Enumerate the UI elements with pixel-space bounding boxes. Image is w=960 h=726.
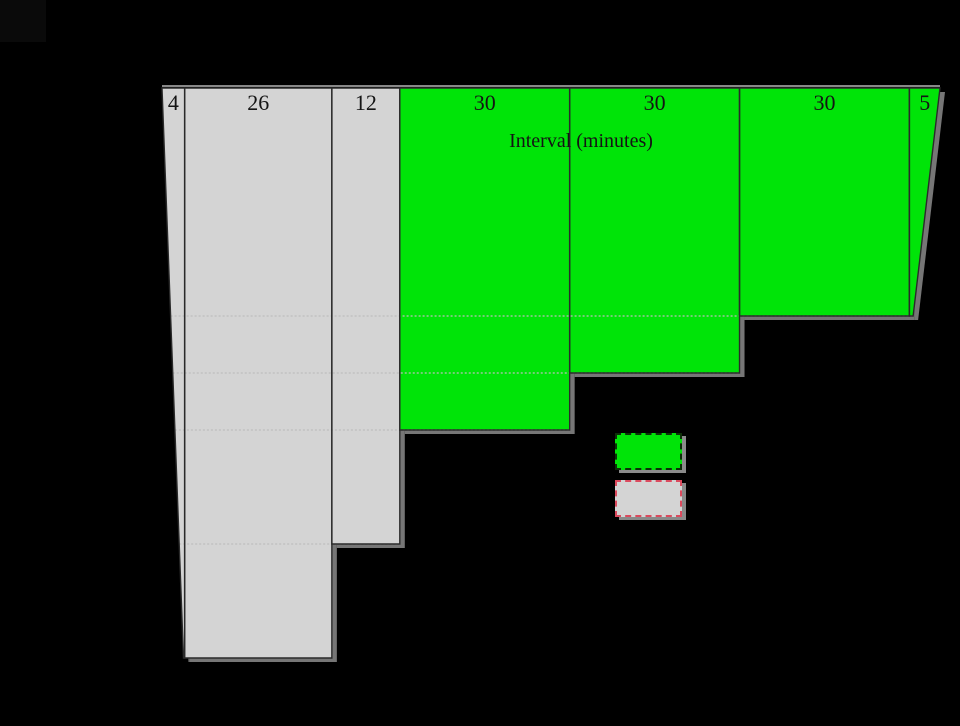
histogram-bar[interactable] <box>740 88 910 316</box>
x-axis-title: Interval (minutes) <box>509 130 653 153</box>
bar-width-label: 30 <box>813 90 835 115</box>
bar-width-label: 26 <box>247 90 269 115</box>
histogram-bar[interactable] <box>332 88 400 544</box>
histogram-chart: 426123030305 <box>0 0 960 726</box>
bar-width-label: 5 <box>919 90 930 115</box>
legend-swatch-gray[interactable] <box>615 480 682 517</box>
bar-width-label: 30 <box>644 90 666 115</box>
bar-width-label: 30 <box>474 90 496 115</box>
legend <box>615 433 695 523</box>
page: 426123030305 Interval (minutes) <box>0 0 960 726</box>
bar-width-label: 4 <box>168 90 179 115</box>
legend-swatch-green[interactable] <box>615 433 682 470</box>
bar-width-label: 12 <box>355 90 377 115</box>
